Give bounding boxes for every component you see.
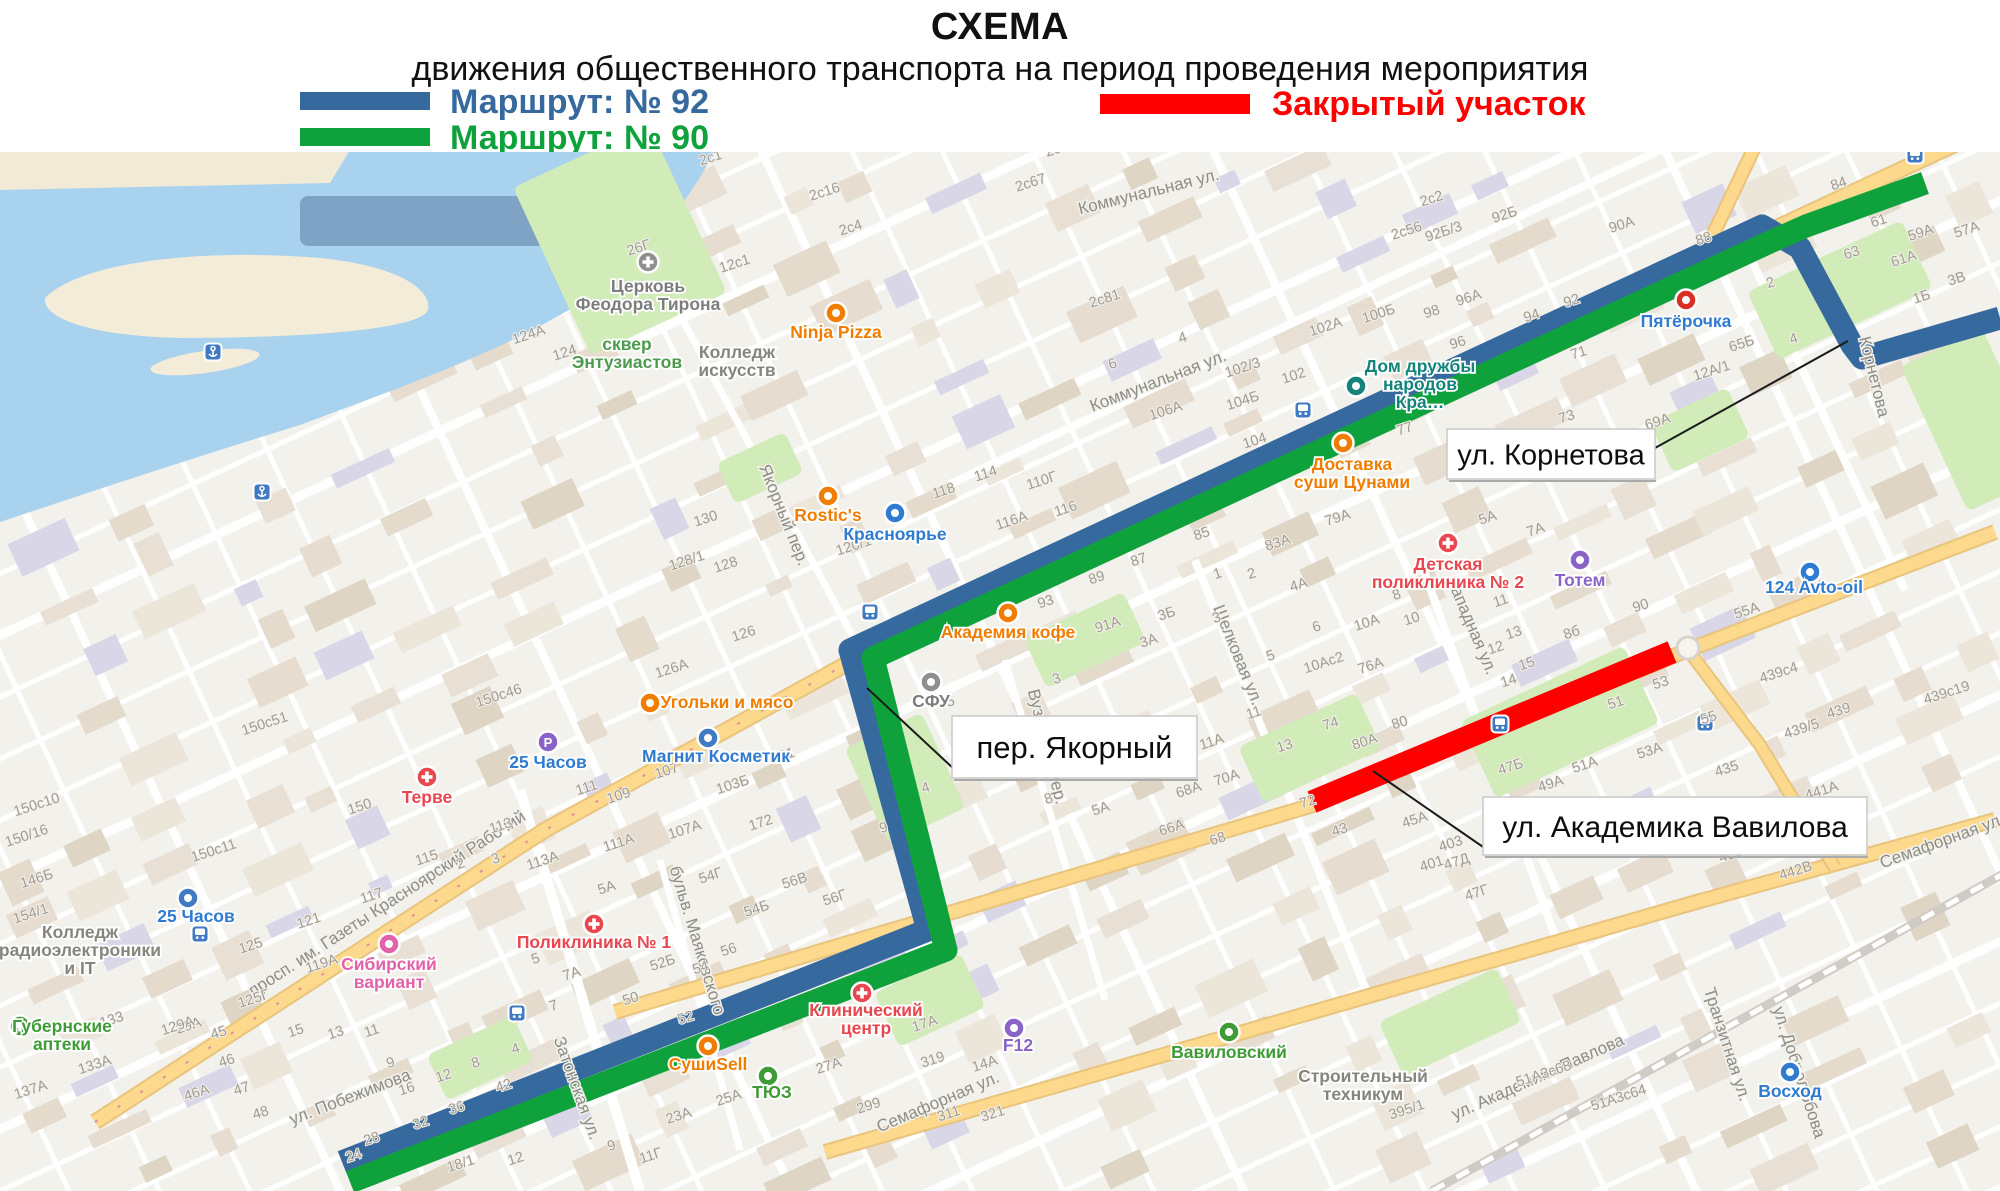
poi-label: F12 xyxy=(1003,1035,1033,1055)
bus-stop-icon xyxy=(192,926,209,943)
bus-stop-icon xyxy=(1295,402,1312,419)
poi-label: Rostic's xyxy=(794,505,862,525)
svg-text:P: P xyxy=(544,735,553,750)
poi-label: Вавиловский xyxy=(1171,1042,1287,1062)
poi-icon xyxy=(1333,433,1354,454)
poi-label: сквер xyxy=(602,334,651,354)
poi-icon xyxy=(1676,290,1697,311)
callout-text: пер. Якорный xyxy=(977,730,1173,765)
scheme-page: СХЕМА движения общественного транспорта … xyxy=(0,0,2000,1191)
poi-label: Феодора Тирона xyxy=(576,294,721,314)
poi-label: Поликлиника № 1 xyxy=(517,932,672,952)
poi-label: техникум xyxy=(1323,1084,1403,1104)
bus-stop-icon xyxy=(509,1005,526,1022)
poi-icon xyxy=(998,603,1019,624)
poi-label: Красноярье xyxy=(843,524,947,544)
poi-label: Церковь xyxy=(611,276,685,296)
poi-label: Клинический xyxy=(809,1000,923,1020)
poi-icon xyxy=(1219,1022,1240,1043)
bus-stop-icon xyxy=(1492,716,1509,733)
poi-icon xyxy=(818,486,839,507)
dock-icon xyxy=(254,484,271,501)
poi-label: Академия кофе xyxy=(941,622,1076,642)
poi-label: аптеки xyxy=(33,1034,91,1054)
poi-label: народов xyxy=(1383,374,1457,394)
poi-label: искусств xyxy=(698,360,776,380)
poi-label: Энтузиастов xyxy=(572,352,682,372)
poi-icon: P xyxy=(538,732,559,753)
roundabout xyxy=(1677,637,1699,659)
poi-label: поликлиника № 2 xyxy=(1372,572,1525,592)
dock-icon xyxy=(205,344,222,361)
poi-label: Кра… xyxy=(1396,392,1445,412)
poi-label: Детская xyxy=(1414,554,1483,574)
poi-label: Доставка xyxy=(1312,454,1393,474)
poi-icon xyxy=(417,767,438,788)
poi-label: СФУ xyxy=(912,691,951,711)
poi-icon xyxy=(1780,1062,1801,1083)
poi-label: Терве xyxy=(402,787,453,807)
callout-text: ул. Академика Вавилова xyxy=(1502,811,1848,844)
poi-label: Колледж xyxy=(699,342,776,362)
poi-label: Тотем xyxy=(1555,570,1606,590)
poi-label: 25 Часов xyxy=(157,906,235,926)
poi-label: радиоэлектроники xyxy=(0,940,161,960)
city-map: Коммунальная ул.Коммунальная ул.Якорный … xyxy=(0,0,2000,1191)
poi-label: Пятёрочка xyxy=(1641,311,1732,331)
poi-icon xyxy=(1438,533,1459,554)
map-base: Коммунальная ул.Коммунальная ул.Якорный … xyxy=(0,0,2000,1191)
poi-label: Ninja Pizza xyxy=(790,322,882,342)
poi-label: СушиSell xyxy=(669,1054,748,1074)
poi-label: Сибирский xyxy=(341,954,437,974)
poi-label: вариант xyxy=(354,972,425,992)
bus-stop-icon xyxy=(1907,147,1924,164)
poi-label: ТЮЗ xyxy=(752,1082,792,1102)
poi-icon xyxy=(1346,376,1367,397)
poi-icon xyxy=(1570,550,1591,571)
poi-label: Восход xyxy=(1758,1081,1821,1101)
poi-label: Строительный xyxy=(1298,1066,1428,1086)
poi-label: Дом дружбы xyxy=(1365,356,1476,376)
poi-label: 124 Avto-oil xyxy=(1765,577,1863,597)
poi-icon xyxy=(379,934,400,955)
poi-icon xyxy=(640,693,661,714)
poi-label: 25 Часов xyxy=(509,752,587,772)
bus-stop-icon xyxy=(862,604,879,621)
poi-label: Магнит Косметик xyxy=(642,746,790,766)
poi-label: Угольки и мясо xyxy=(661,692,794,712)
poi-label: суши Цунами xyxy=(1294,472,1410,492)
poi-label: Колледж xyxy=(42,922,119,942)
poi-icon xyxy=(826,303,847,324)
poi-icon xyxy=(921,672,942,693)
poi-icon xyxy=(638,252,659,273)
poi-label: Губернские xyxy=(12,1016,112,1036)
poi-label: и IT xyxy=(64,958,95,978)
poi-label: центр xyxy=(841,1018,891,1038)
poi-icon xyxy=(885,503,906,524)
callout-text: ул. Корнетова xyxy=(1457,439,1645,471)
